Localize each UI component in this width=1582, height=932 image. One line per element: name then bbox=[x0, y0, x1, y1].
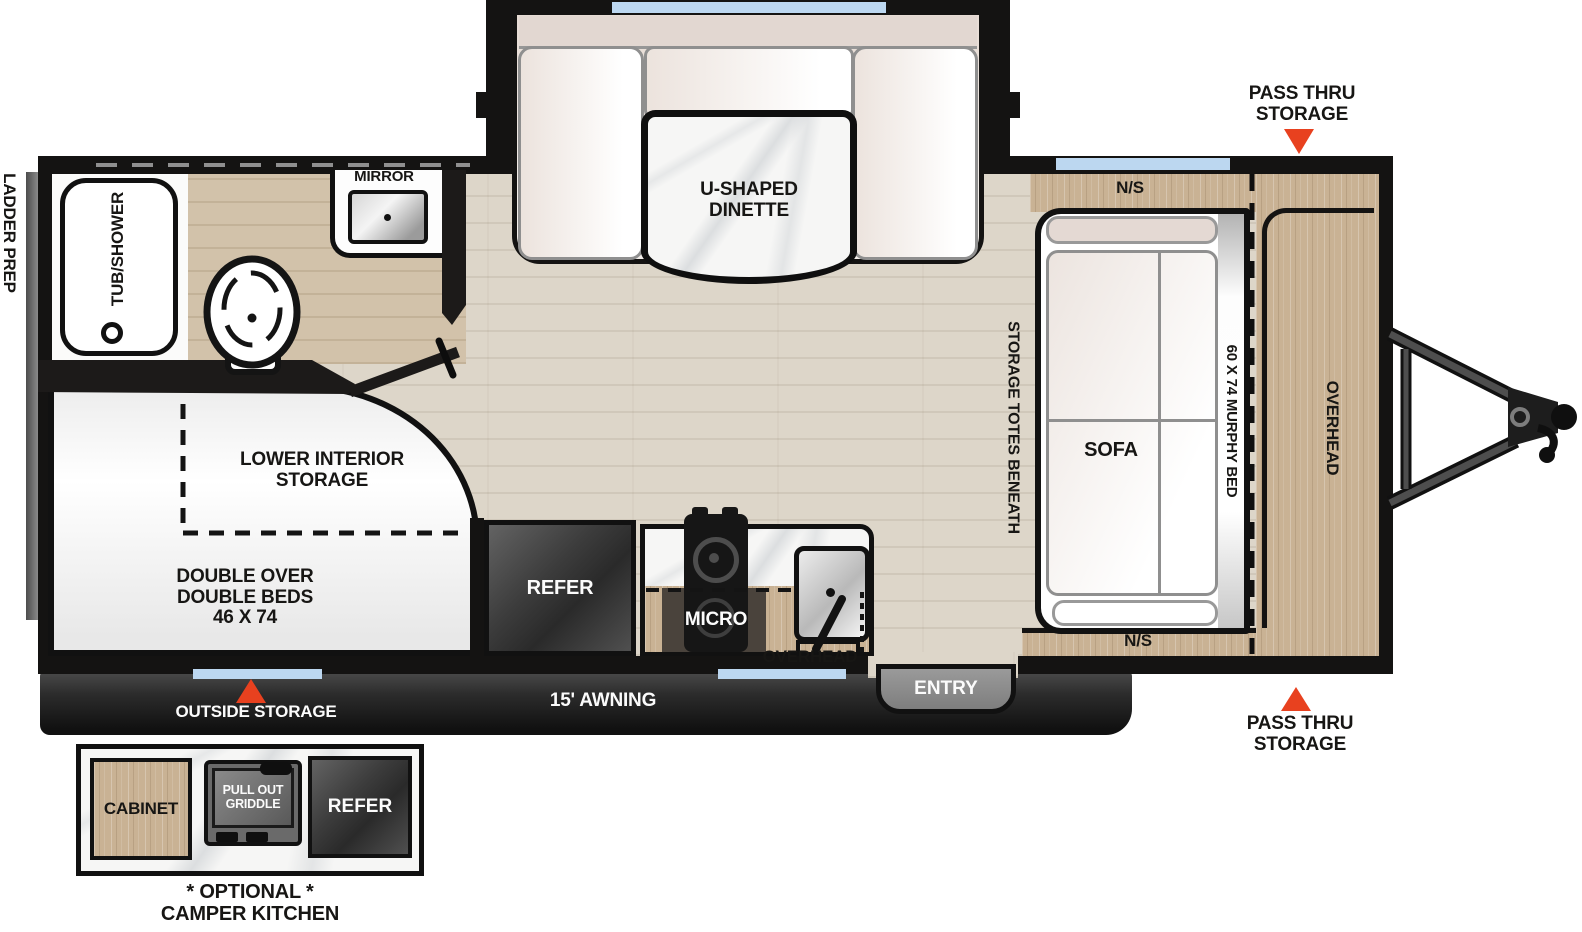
pass-thru-top-line1: PASS THRU bbox=[1212, 84, 1392, 105]
outside-storage-label: OUTSIDE STORAGE bbox=[158, 703, 354, 721]
sofa-label: SOFA bbox=[1056, 440, 1166, 462]
kitchen-overhead-label: OVERHEAD bbox=[752, 648, 868, 666]
camper-griddle-foot-left bbox=[216, 832, 238, 842]
sofa-cushions bbox=[1046, 250, 1218, 596]
overhead-cabinet-outline bbox=[1262, 208, 1374, 628]
camper-kitchen-caption-line1: * OPTIONAL * bbox=[135, 882, 365, 904]
bunk-window bbox=[193, 669, 322, 679]
entry-label: ENTRY bbox=[914, 678, 978, 700]
kitchen-window bbox=[718, 669, 846, 679]
camper-cabinet: CABINET bbox=[90, 758, 192, 860]
tub-drain bbox=[101, 322, 123, 344]
mirror-label: MIRROR bbox=[334, 169, 434, 185]
bunk-kitchen-divider-wall bbox=[470, 518, 484, 658]
overhead-right-label: OVERHEAD bbox=[1323, 323, 1341, 533]
storage-totes-label: STORAGE TOTES BENEATH bbox=[1005, 278, 1022, 578]
cooktop-knob-right bbox=[722, 507, 738, 517]
pass-thru-bottom-arrow bbox=[1281, 687, 1311, 711]
camper-griddle-label: PULL OUT GRIDDLE bbox=[223, 784, 284, 812]
dinette-label: U-SHAPED DINETTE bbox=[649, 180, 849, 221]
lower-interior-storage-line1: LOWER INTERIOR bbox=[212, 450, 432, 471]
camper-griddle-line1: PULL OUT bbox=[223, 784, 284, 798]
camper-griddle-handle bbox=[260, 762, 292, 775]
dinette-label-line1: U-SHAPED bbox=[649, 180, 849, 201]
sofa-cushion-divider-v bbox=[1158, 252, 1161, 594]
pass-thru-bottom-line2: STORAGE bbox=[1210, 735, 1390, 756]
awning-label: 15' AWNING bbox=[518, 691, 688, 712]
refer-label: REFER bbox=[527, 577, 594, 600]
burner-top-center bbox=[709, 553, 719, 563]
sofa-footrest bbox=[1052, 600, 1218, 626]
double-beds-line3: 46 X 74 bbox=[135, 608, 355, 629]
camper-cabinet-label: CABINET bbox=[104, 800, 178, 818]
refrigerator: REFER bbox=[484, 520, 636, 656]
dinette-bench-right bbox=[852, 46, 978, 260]
dinette-bench-back bbox=[644, 46, 854, 120]
ladder-prep-rail bbox=[26, 172, 38, 620]
sofa-cushion-divider-h bbox=[1048, 419, 1216, 422]
dinette-bench-left bbox=[518, 46, 644, 260]
tongue-hitch bbox=[1390, 334, 1577, 503]
ladder-prep-label: LADDER PREP bbox=[0, 158, 18, 308]
wall-bottom-right bbox=[1018, 656, 1393, 674]
outside-storage-arrow bbox=[236, 679, 266, 703]
camper-kitchen-caption-line2: CAMPER KITCHEN bbox=[135, 904, 365, 926]
camper-refer-label: REFER bbox=[328, 796, 392, 818]
pass-thru-bottom-line1: PASS THRU bbox=[1210, 714, 1390, 735]
micro-label: MICRO bbox=[671, 610, 761, 631]
lower-interior-storage-line2: STORAGE bbox=[212, 471, 432, 492]
wall-right bbox=[1379, 156, 1393, 674]
dinette-backrest bbox=[519, 16, 977, 49]
front-window bbox=[1056, 158, 1230, 170]
tub-shower-label: TUB/SHOWER bbox=[109, 179, 127, 319]
pass-thru-top-arrow bbox=[1284, 129, 1314, 154]
camper-griddle-foot-right bbox=[246, 832, 268, 842]
slideout-wall-right bbox=[980, 0, 1010, 172]
vanity-drain bbox=[384, 214, 391, 221]
lower-interior-storage-label: LOWER INTERIOR STORAGE bbox=[212, 450, 432, 491]
pass-thru-bottom-label: PASS THRU STORAGE bbox=[1210, 714, 1390, 755]
camper-kitchen-caption: * OPTIONAL * CAMPER KITCHEN bbox=[135, 882, 365, 925]
sink-drain bbox=[826, 588, 835, 597]
entry-step: ENTRY bbox=[876, 664, 1016, 714]
double-beds-label: DOUBLE OVER DOUBLE BEDS 46 X 74 bbox=[135, 567, 355, 629]
ns-bottom-label: N/S bbox=[1108, 632, 1168, 650]
pass-thru-top-line2: STORAGE bbox=[1212, 105, 1392, 126]
camper-griddle-line2: GRIDDLE bbox=[223, 798, 284, 812]
floorplan-diagram: U-SHAPED DINETTE TUB/SHOWER MIRROR LOWER… bbox=[0, 0, 1582, 932]
camper-refer: REFER bbox=[308, 756, 412, 858]
double-beds-line2: DOUBLE BEDS bbox=[135, 588, 355, 609]
camper-griddle-panel: PULL OUT GRIDDLE bbox=[212, 768, 294, 828]
double-beds-line1: DOUBLE OVER bbox=[135, 567, 355, 588]
dinette-label-line2: DINETTE bbox=[649, 201, 849, 222]
ns-top-label: N/S bbox=[1100, 179, 1160, 197]
sofa-backrest bbox=[1046, 216, 1218, 244]
slideout-stop-tab-right bbox=[1008, 92, 1020, 118]
dinette-window bbox=[612, 2, 886, 13]
pass-thru-top-label: PASS THRU STORAGE bbox=[1212, 84, 1392, 125]
slideout-stop-tab-left bbox=[476, 92, 488, 118]
murphy-bed-label: 60 X 74 MURPHY BED bbox=[1223, 231, 1239, 611]
cooktop-knob-left bbox=[692, 507, 708, 517]
